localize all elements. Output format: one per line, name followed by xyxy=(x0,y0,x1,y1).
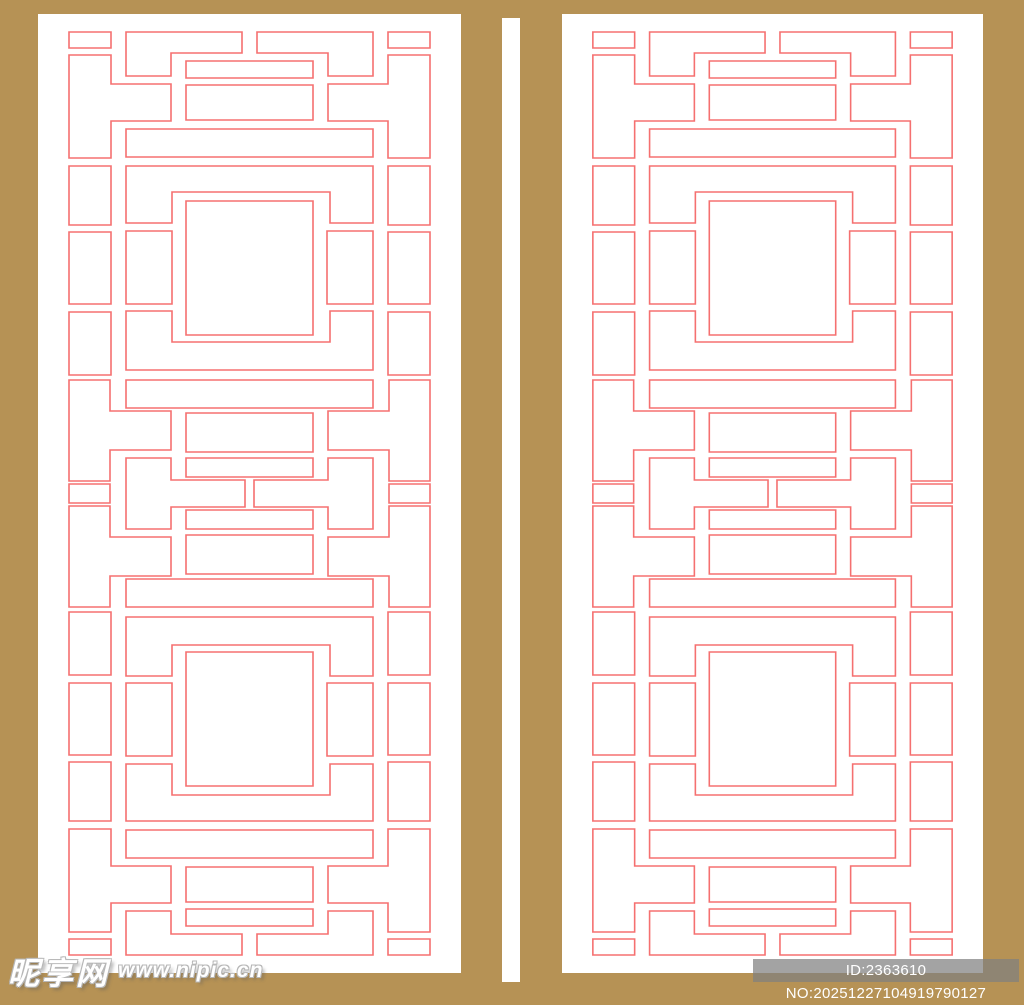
lattice-piece xyxy=(126,683,172,756)
lattice-piece xyxy=(850,231,896,304)
lattice-piece xyxy=(388,32,430,48)
lattice-piece xyxy=(593,683,635,755)
lattice-piece xyxy=(593,312,635,375)
lattice-piece xyxy=(911,484,952,503)
lattice-piece xyxy=(910,32,952,48)
lattice-piece xyxy=(650,129,896,157)
lattice-piece xyxy=(593,612,635,675)
lattice-piece xyxy=(126,830,373,858)
lattice-piece xyxy=(650,830,896,858)
lattice-piece xyxy=(593,32,635,48)
lattice-pattern-right-svg xyxy=(562,14,983,973)
lattice-piece xyxy=(186,867,313,902)
lattice-piece xyxy=(910,166,952,225)
lattice-piece xyxy=(126,231,172,304)
lattice-piece xyxy=(69,683,111,755)
lattice-piece xyxy=(910,612,952,675)
lattice-panel-left xyxy=(38,14,461,973)
lattice-piece xyxy=(709,61,835,78)
lattice-piece xyxy=(910,683,952,755)
lattice-piece xyxy=(709,201,835,335)
lattice-pattern-left-svg xyxy=(38,14,461,973)
lattice-piece xyxy=(709,652,835,786)
lattice-piece xyxy=(593,166,635,225)
lattice-piece xyxy=(388,232,430,304)
lattice-piece xyxy=(650,231,696,304)
lattice-piece xyxy=(910,939,952,955)
lattice-piece xyxy=(910,312,952,375)
lattice-panel-right xyxy=(562,14,983,973)
lattice-piece xyxy=(126,579,373,607)
lattice-piece xyxy=(910,232,952,304)
image-id-badge: ID:2363610 NO:20251227104919790127 xyxy=(753,959,1019,982)
lattice-piece xyxy=(593,484,634,503)
lattice-piece xyxy=(186,61,313,78)
lattice-piece xyxy=(650,683,696,756)
lattice-piece xyxy=(709,413,835,452)
lattice-piece xyxy=(186,909,313,926)
lattice-piece xyxy=(69,312,111,375)
lattice-piece xyxy=(709,85,835,120)
watermark-site-url: www.nipic.cn xyxy=(118,959,263,982)
center-gap-stripe xyxy=(502,18,520,982)
lattice-piece xyxy=(709,867,835,902)
lattice-piece xyxy=(69,762,111,821)
lattice-piece xyxy=(389,484,430,503)
lattice-piece xyxy=(69,484,110,503)
lattice-piece xyxy=(388,612,430,675)
lattice-piece xyxy=(69,32,111,48)
stock-image-preview: { "image": { "description": "Two identic… xyxy=(0,0,1024,999)
lattice-piece xyxy=(186,201,313,335)
lattice-piece xyxy=(593,762,635,821)
lattice-piece xyxy=(709,510,835,529)
lattice-piece xyxy=(186,535,313,574)
lattice-piece xyxy=(593,939,635,955)
lattice-piece xyxy=(186,458,313,477)
lattice-piece xyxy=(327,231,373,304)
lattice-piece xyxy=(593,232,635,304)
watermark-site-name: 昵享网 xyxy=(8,956,110,991)
lattice-piece xyxy=(388,939,430,955)
lattice-piece xyxy=(186,652,313,786)
lattice-piece xyxy=(650,579,896,607)
lattice-piece xyxy=(126,380,373,408)
lattice-piece xyxy=(186,510,313,529)
lattice-piece xyxy=(709,458,835,477)
lattice-piece xyxy=(126,129,373,157)
lattice-piece xyxy=(388,312,430,375)
lattice-piece xyxy=(650,380,896,408)
lattice-piece xyxy=(327,683,373,756)
lattice-piece xyxy=(69,612,111,675)
lattice-piece xyxy=(709,535,835,574)
lattice-piece xyxy=(186,85,313,120)
lattice-piece xyxy=(388,762,430,821)
lattice-piece xyxy=(910,762,952,821)
lattice-piece xyxy=(709,909,835,926)
lattice-piece xyxy=(388,683,430,755)
lattice-piece xyxy=(186,413,313,452)
lattice-piece xyxy=(388,166,430,225)
lattice-piece xyxy=(69,232,111,304)
lattice-piece xyxy=(69,166,111,225)
lattice-piece xyxy=(850,683,896,756)
watermark: 昵享网www.nipic.cn xyxy=(8,948,263,993)
